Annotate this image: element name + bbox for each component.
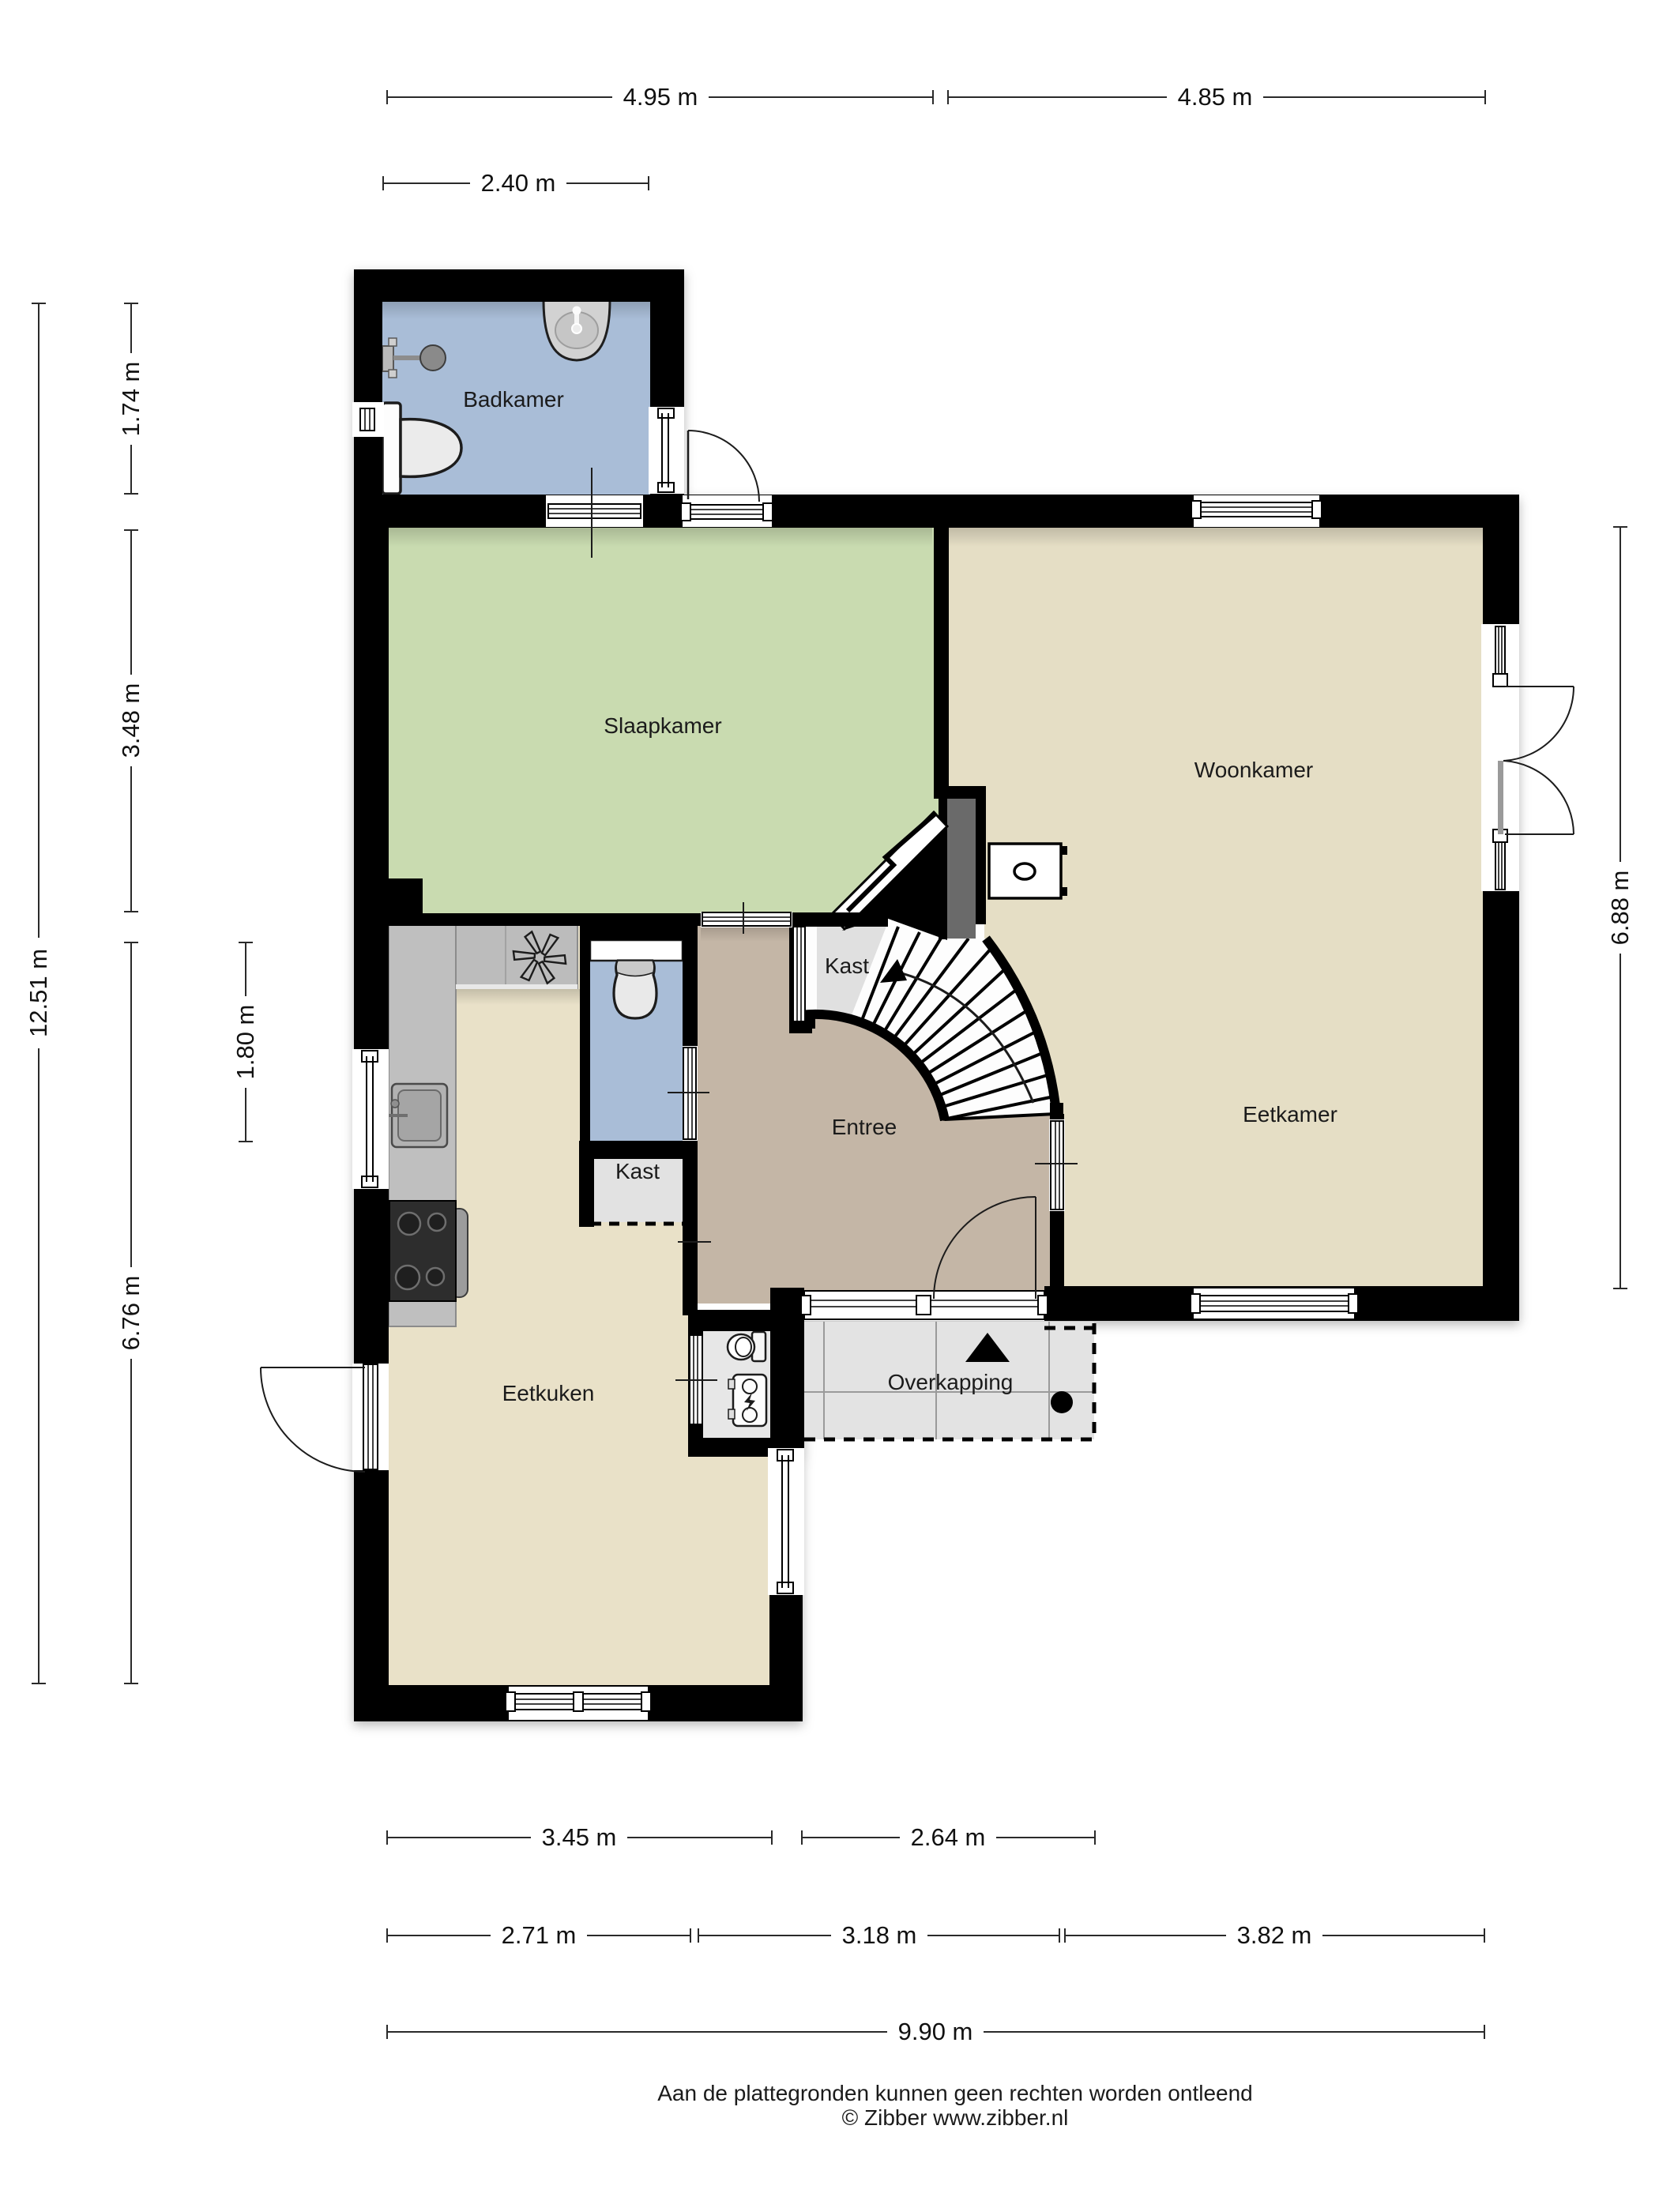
svg-text:2.40 m: 2.40 m (481, 169, 556, 197)
svg-text:1.74 m: 1.74 m (117, 362, 145, 437)
svg-text:Eetkuken: Eetkuken (502, 1381, 595, 1405)
svg-text:Kast: Kast (615, 1159, 660, 1183)
svg-text:4.85 m: 4.85 m (1178, 83, 1253, 111)
svg-text:6.88 m: 6.88 m (1606, 871, 1634, 946)
svg-text:Woonkamer: Woonkamer (1194, 758, 1313, 782)
svg-text:Entree: Entree (832, 1115, 897, 1139)
svg-text:3.45 m: 3.45 m (542, 1823, 617, 1851)
svg-text:Aan de plattegronden kunnen ge: Aan de plattegronden kunnen geen rechten… (657, 2081, 1252, 2105)
svg-text:2.64 m: 2.64 m (911, 1823, 986, 1851)
svg-text:9.90 m: 9.90 m (898, 2018, 973, 2045)
svg-text:3.48 m: 3.48 m (117, 683, 145, 758)
svg-text:Badkamer: Badkamer (463, 387, 564, 412)
svg-text:6.76 m: 6.76 m (117, 1276, 145, 1351)
svg-text:3.82 m: 3.82 m (1237, 1921, 1312, 1949)
svg-text:4.95 m: 4.95 m (623, 83, 698, 111)
svg-text:1.80 m: 1.80 m (231, 1005, 259, 1080)
svg-text:Eetkamer: Eetkamer (1243, 1102, 1337, 1127)
svg-text:Overkapping: Overkapping (888, 1370, 1014, 1394)
svg-text:3.18 m: 3.18 m (842, 1921, 917, 1949)
svg-text:Kast: Kast (825, 954, 869, 978)
svg-text:12.51 m: 12.51 m (24, 949, 52, 1037)
svg-text:Slaapkamer: Slaapkamer (604, 713, 721, 738)
svg-text:© Zibber www.zibber.nl: © Zibber www.zibber.nl (842, 2105, 1069, 2130)
svg-text:2.71 m: 2.71 m (502, 1921, 577, 1949)
